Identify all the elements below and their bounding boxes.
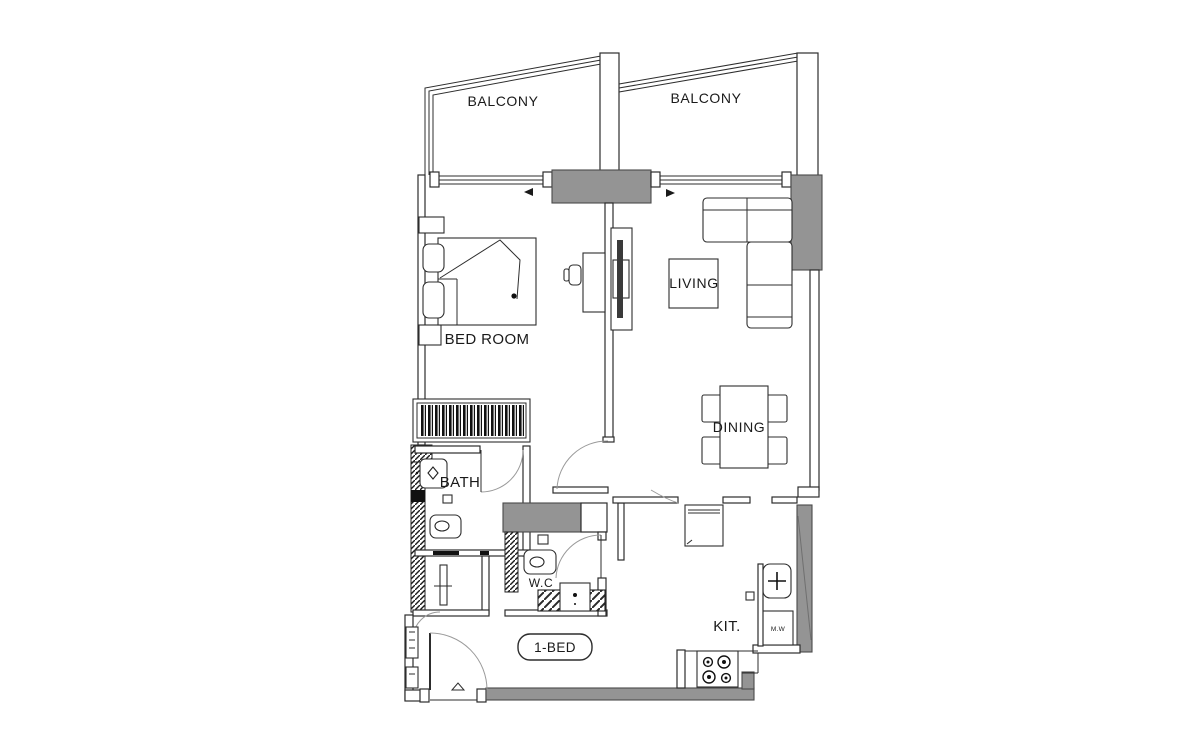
tv-screen xyxy=(617,240,623,318)
counter-edge-right xyxy=(758,564,763,646)
wc-tap xyxy=(538,535,548,544)
balcony-right-column xyxy=(797,53,818,177)
entrance-door-arc xyxy=(430,633,487,690)
wall-block xyxy=(411,490,425,502)
kitchen-sink xyxy=(763,564,791,598)
sliding-door-bedroom xyxy=(430,172,552,187)
microwave-label: M.W xyxy=(771,626,786,633)
balcony-right-label: BALCONY xyxy=(670,90,741,106)
bed-detail-dot xyxy=(511,293,516,298)
door-leaf-symbol xyxy=(440,565,447,605)
wc-room: W.C xyxy=(524,535,605,611)
wc-duct-block xyxy=(503,503,581,532)
entry-door-post-right xyxy=(477,689,486,702)
unit-type-label: 1-BED xyxy=(534,640,576,655)
unit-type-badge: 1-BED xyxy=(518,634,592,660)
balcony-right: BALCONY xyxy=(619,53,818,177)
dining-label: DINING xyxy=(713,419,766,435)
bedroom-label: BED ROOM xyxy=(445,331,530,348)
electrical-panel xyxy=(406,667,418,688)
balcony-divider-column xyxy=(600,53,619,177)
kitchen-wall-c xyxy=(772,497,797,503)
balcony-right-railing xyxy=(619,53,798,94)
corridor-wall xyxy=(553,487,608,493)
wc-label: W.C xyxy=(529,576,553,590)
bath-tap xyxy=(443,495,452,503)
floor-drain xyxy=(746,592,754,600)
bottom-wall-gray xyxy=(486,688,754,700)
kitchen: M.W KIT. xyxy=(651,490,793,688)
living-label: LIVING xyxy=(669,275,719,291)
kitchen-label: KIT. xyxy=(713,618,740,635)
wardrobe xyxy=(413,399,530,442)
bath-top-wall xyxy=(415,446,480,453)
floor-plan-drawing: BALCONY BALCONY xyxy=(0,0,1200,742)
dresser xyxy=(583,253,605,312)
wc-top-wall xyxy=(581,503,607,532)
living-room: LIVING xyxy=(611,198,792,330)
corridor-right-wall xyxy=(618,503,624,560)
store-right-wall xyxy=(482,556,489,614)
right-exterior-wall xyxy=(810,270,819,490)
bath-right-wall xyxy=(523,446,530,556)
bottom-wall-step xyxy=(742,672,754,689)
microwave: M.W xyxy=(762,611,793,645)
balcony-left: BALCONY xyxy=(425,53,619,177)
chair xyxy=(569,265,581,285)
bath-label: BATH xyxy=(440,474,481,491)
kitchen-wall-a xyxy=(613,497,678,503)
threshold-mark xyxy=(452,683,464,690)
slide-direction-right-icon xyxy=(666,189,675,197)
wc-wet-wall-left xyxy=(505,532,518,592)
corner-column xyxy=(791,175,822,270)
wc-sink xyxy=(560,583,590,611)
hall-top-wall xyxy=(413,610,489,616)
bed xyxy=(423,238,536,325)
bedroom: BED ROOM xyxy=(413,217,605,442)
wc-toilet xyxy=(524,550,556,574)
nightstand-top xyxy=(419,217,444,233)
kitchen-right-wall xyxy=(797,505,812,652)
slide-direction-left-icon xyxy=(524,188,533,196)
kitchen-wall-b xyxy=(723,497,750,503)
balcony-left-label: BALCONY xyxy=(467,93,538,109)
entry-door-post-left xyxy=(420,689,429,702)
sliding-door-living xyxy=(651,172,791,187)
wc-door-arc xyxy=(556,535,601,578)
right-wall-step xyxy=(798,487,819,497)
bath-door-arc xyxy=(481,450,523,492)
corridor-door-arc xyxy=(557,441,608,489)
nightstand-bottom xyxy=(419,325,441,345)
fridge xyxy=(685,505,723,546)
dresser-and-chair xyxy=(564,253,605,312)
tv-unit xyxy=(611,228,632,330)
stove xyxy=(697,651,738,687)
entrance-door xyxy=(430,633,487,690)
counter-edge-left xyxy=(677,650,685,688)
balcony-left-railing xyxy=(425,56,601,175)
bath-toilet xyxy=(430,515,461,538)
wc-right-wall-stub xyxy=(598,532,606,540)
dining-area: DINING xyxy=(702,386,787,468)
floor-plan-canvas: BALCONY BALCONY xyxy=(0,0,1200,742)
header-wall-block xyxy=(552,170,651,203)
